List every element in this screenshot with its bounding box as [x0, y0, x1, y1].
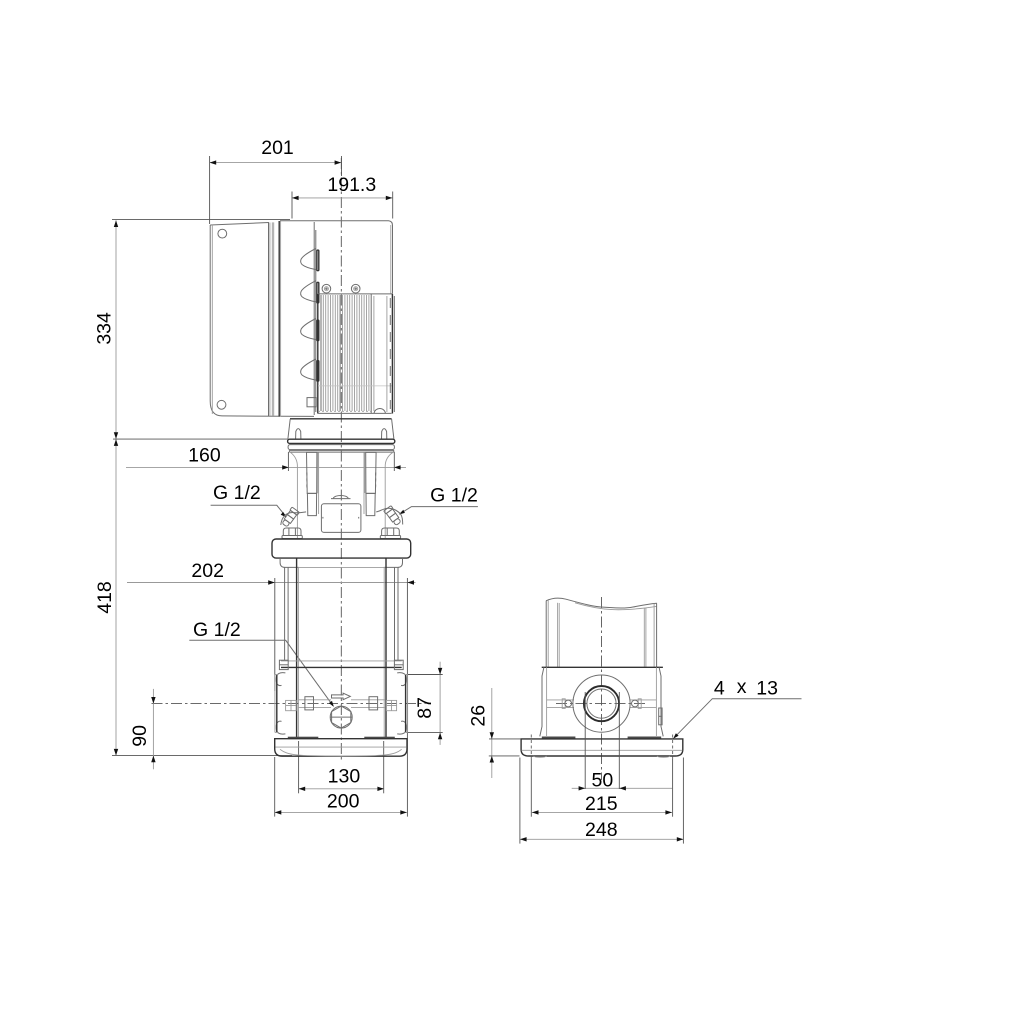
svg-text:248: 248: [585, 819, 618, 841]
svg-text:87: 87: [414, 697, 436, 719]
svg-text:G 1/2: G 1/2: [193, 619, 241, 641]
svg-text:G 1/2: G 1/2: [430, 484, 478, 506]
svg-text:160: 160: [188, 445, 221, 467]
svg-text:201: 201: [261, 137, 294, 159]
svg-text:13: 13: [756, 677, 778, 699]
svg-text:G 1/2: G 1/2: [213, 482, 261, 504]
svg-text:x: x: [737, 676, 747, 698]
svg-text:202: 202: [191, 560, 224, 582]
svg-text:130: 130: [328, 765, 361, 787]
svg-text:4: 4: [714, 677, 725, 699]
svg-text:26: 26: [468, 705, 490, 727]
svg-text:334: 334: [93, 312, 115, 345]
svg-text:215: 215: [585, 793, 618, 815]
svg-text:191.3: 191.3: [327, 174, 376, 196]
svg-text:418: 418: [94, 581, 116, 614]
svg-text:200: 200: [327, 790, 360, 812]
svg-text:90: 90: [129, 725, 151, 747]
